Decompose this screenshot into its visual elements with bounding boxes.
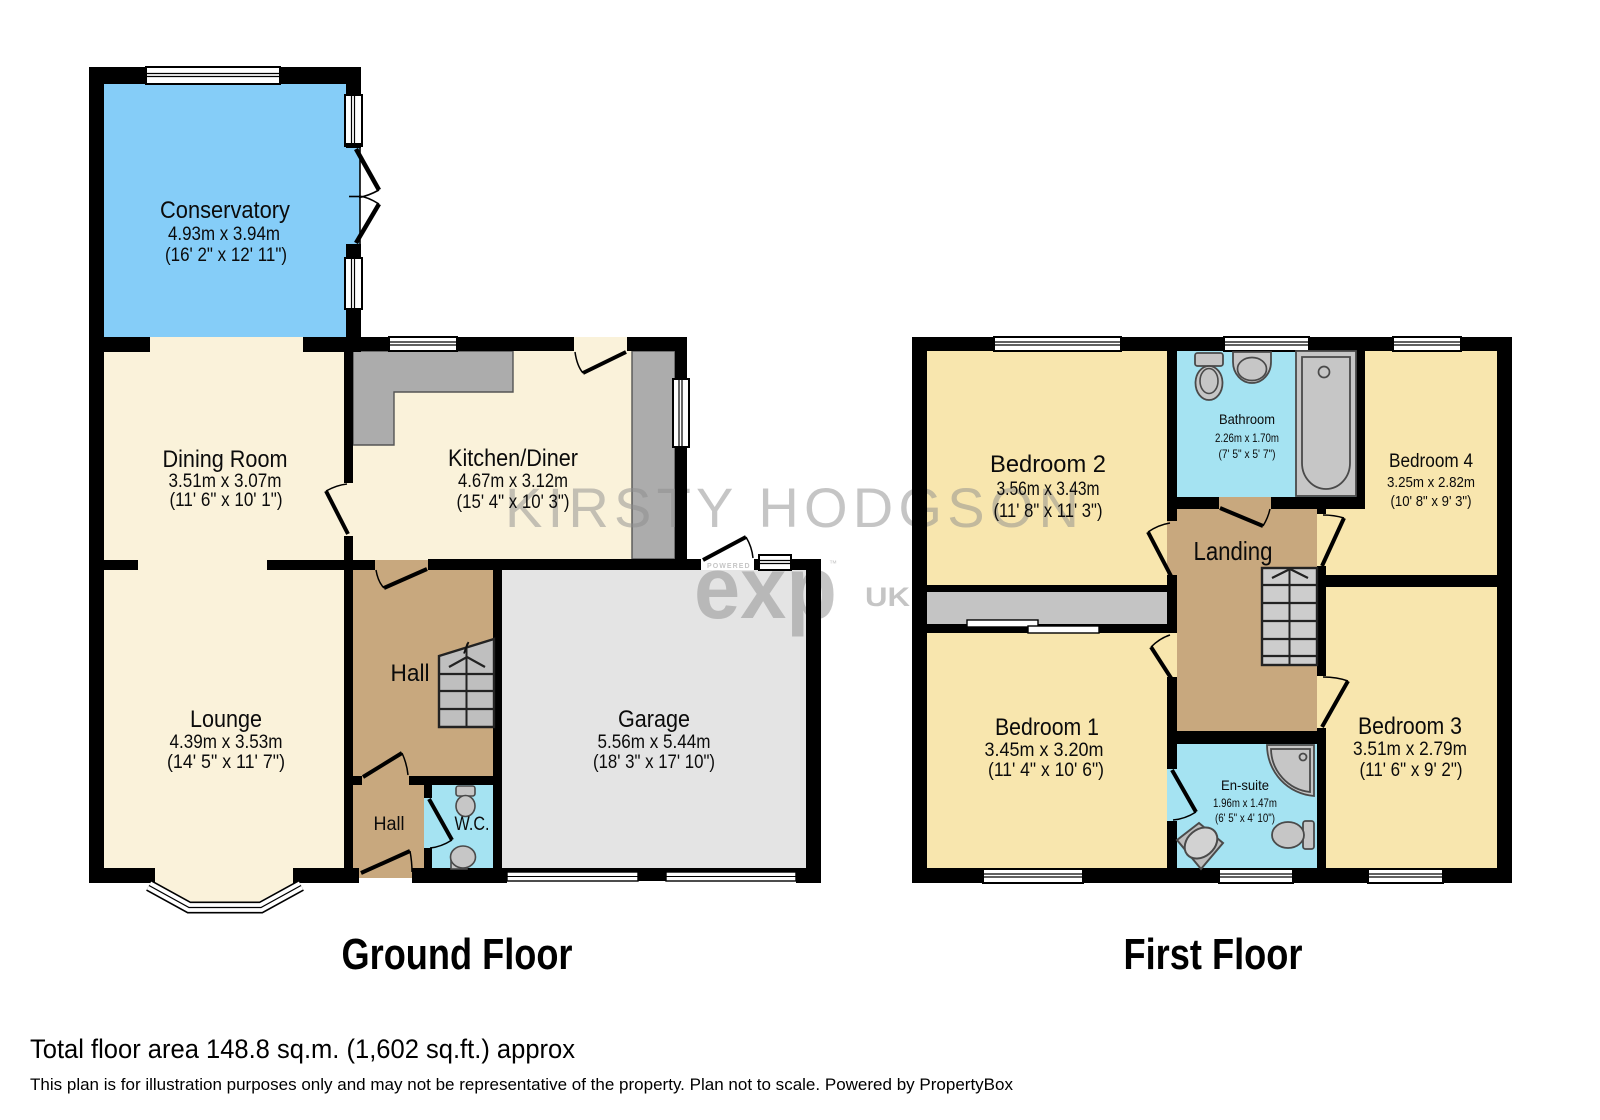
- svg-text:Kitchen/Diner: Kitchen/Diner: [448, 445, 578, 472]
- svg-text:4.93m x 3.94m: 4.93m x 3.94m: [168, 224, 280, 245]
- svg-text:(6' 5" x 4' 10"): (6' 5" x 4' 10"): [1215, 811, 1275, 825]
- svg-text:(14' 5" x 11' 7"): (14' 5" x 11' 7"): [167, 752, 285, 773]
- svg-text:(18' 3" x 17' 10"): (18' 3" x 17' 10"): [593, 752, 715, 773]
- svg-text:W.C.: W.C.: [455, 814, 490, 835]
- svg-text:Garage: Garage: [618, 706, 690, 733]
- svg-text:First Floor: First Floor: [1124, 930, 1303, 979]
- svg-text:(7' 5" x 5' 7"): (7' 5" x 5' 7"): [1219, 447, 1276, 461]
- svg-text:3.56m x 3.43m: 3.56m x 3.43m: [997, 479, 1100, 500]
- svg-text:3.45m x 3.20m: 3.45m x 3.20m: [985, 740, 1104, 761]
- svg-text:3.51m x 3.07m: 3.51m x 3.07m: [169, 471, 282, 492]
- svg-text:Dining Room: Dining Room: [163, 446, 288, 473]
- svg-text:Bedroom 2: Bedroom 2: [990, 451, 1106, 478]
- svg-text:Landing: Landing: [1194, 536, 1273, 566]
- svg-text:Lounge: Lounge: [190, 706, 262, 733]
- svg-text:(11' 6" x 10' 1"): (11' 6" x 10' 1"): [170, 490, 283, 511]
- svg-text:This plan is for illustration: This plan is for illustration purposes o…: [30, 1075, 1013, 1094]
- svg-text:En-suite: En-suite: [1221, 777, 1269, 793]
- svg-text:(11' 4" x 10' 6"): (11' 4" x 10' 6"): [988, 760, 1104, 781]
- svg-text:Conservatory: Conservatory: [160, 197, 290, 224]
- svg-text:Bedroom 3: Bedroom 3: [1358, 713, 1462, 740]
- svg-text:5.56m x 5.44m: 5.56m x 5.44m: [598, 732, 711, 753]
- svg-text:Bathroom: Bathroom: [1219, 411, 1275, 427]
- svg-text:Ground Floor: Ground Floor: [342, 930, 573, 979]
- svg-text:™: ™: [829, 559, 837, 568]
- svg-text:4.39m x 3.53m: 4.39m x 3.53m: [170, 732, 283, 753]
- svg-text:3.25m x 2.82m: 3.25m x 2.82m: [1387, 474, 1475, 491]
- svg-text:Hall: Hall: [391, 660, 430, 687]
- svg-text:3.51m x 2.79m: 3.51m x 2.79m: [1353, 739, 1467, 760]
- svg-text:(15' 4" x 10' 3"): (15' 4" x 10' 3"): [457, 492, 570, 513]
- svg-text:2.26m x 1.70m: 2.26m x 1.70m: [1215, 431, 1279, 445]
- svg-text:Bedroom 1: Bedroom 1: [995, 714, 1099, 741]
- svg-text:Bedroom 4: Bedroom 4: [1389, 451, 1473, 472]
- svg-text:(11' 8" x 11' 3"): (11' 8" x 11' 3"): [994, 501, 1103, 522]
- svg-text:Hall: Hall: [374, 814, 405, 835]
- svg-text:Total floor area 148.8 sq.m. (: Total floor area 148.8 sq.m. (1,602 sq.f…: [30, 1034, 575, 1064]
- svg-text:(16' 2" x 12' 11"): (16' 2" x 12' 11"): [165, 245, 287, 266]
- svg-text:4.67m x 3.12m: 4.67m x 3.12m: [458, 471, 568, 492]
- svg-text:(10' 8" x 9' 3"): (10' 8" x 9' 3"): [1391, 493, 1472, 510]
- svg-text:UK: UK: [865, 582, 911, 612]
- svg-text:(11' 6" x 9' 2"): (11' 6" x 9' 2"): [1360, 760, 1463, 781]
- svg-text:1.96m x 1.47m: 1.96m x 1.47m: [1213, 796, 1277, 810]
